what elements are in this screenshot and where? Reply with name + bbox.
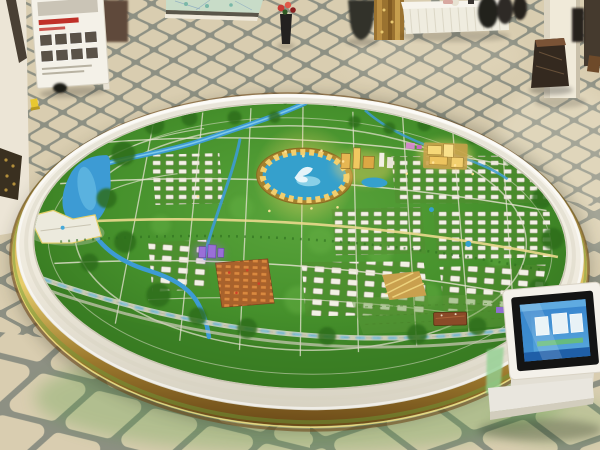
dark-floor-item xyxy=(53,83,67,93)
scene-canvas xyxy=(0,0,600,450)
showroom-photo xyxy=(0,0,600,450)
kiosk-screen-assembly xyxy=(502,282,600,380)
gilded-object xyxy=(0,148,22,200)
wall-map-panel xyxy=(165,0,263,21)
northeast-gold-complex xyxy=(417,139,474,171)
kiosk-screen xyxy=(520,299,591,362)
brown-hall xyxy=(434,312,467,326)
display-board xyxy=(31,0,110,99)
gold-wall-panel xyxy=(374,0,404,40)
orange-district xyxy=(214,257,276,309)
